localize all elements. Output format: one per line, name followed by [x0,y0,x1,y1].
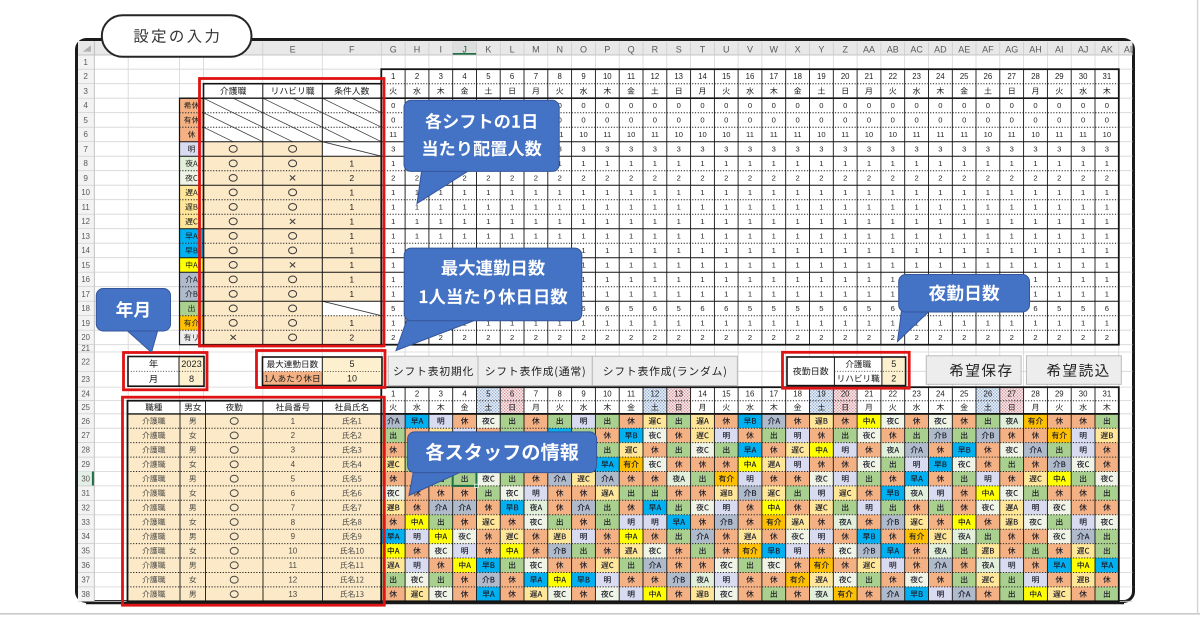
svg-text:34: 34 [81,532,90,541]
svg-text:24: 24 [81,390,90,399]
svg-text:3: 3 [83,87,88,96]
svg-text:19: 19 [81,319,90,328]
svg-text:26: 26 [81,417,90,426]
svg-text:AE: AE [958,44,970,54]
svg-text:AJ: AJ [1078,44,1089,54]
svg-text:11: 11 [289,561,298,570]
svg-text:28: 28 [81,446,90,455]
svg-text:12: 12 [81,217,90,226]
svg-text:V: V [747,44,753,54]
svg-text:29: 29 [81,460,90,469]
svg-text:U: U [723,44,730,54]
svg-text:L: L [510,44,515,54]
svg-text:17: 17 [81,290,90,299]
svg-text:27: 27 [81,431,90,440]
svg-text:2023: 2023 [181,359,201,369]
svg-text:1: 1 [349,245,354,255]
svg-text:10: 10 [288,547,297,556]
svg-text:30: 30 [81,475,90,484]
svg-text:6: 6 [83,130,88,139]
svg-text:M: M [532,44,540,54]
svg-text:5: 5 [291,475,296,484]
svg-text:2: 2 [891,374,896,384]
svg-text:5: 5 [83,116,88,125]
svg-text:AI: AI [1055,44,1064,54]
svg-text:J: J [462,44,467,54]
svg-text:2: 2 [83,72,88,81]
svg-text:2: 2 [291,431,296,440]
svg-text:4: 4 [291,460,296,469]
svg-text:I: I [440,44,443,54]
svg-text:AF: AF [982,44,994,54]
svg-text:R: R [652,44,659,54]
svg-text:31: 31 [81,489,90,498]
svg-text:AG: AG [1005,44,1018,54]
svg-text:8: 8 [83,159,88,168]
svg-text:N: N [556,44,563,54]
svg-text:6: 6 [291,489,296,498]
svg-text:14: 14 [81,246,90,255]
svg-text:P: P [604,44,610,54]
svg-text:1: 1 [349,158,354,168]
svg-text:36: 36 [81,561,90,570]
svg-text:18: 18 [81,304,90,313]
svg-text:K: K [485,44,491,54]
svg-text:7: 7 [83,145,88,154]
svg-text:38: 38 [81,590,90,599]
svg-text:1: 1 [291,417,296,426]
svg-text:10: 10 [347,374,357,384]
svg-text:35: 35 [81,547,90,556]
svg-text:X: X [795,44,801,54]
svg-text:33: 33 [81,518,90,527]
svg-text:G: G [390,44,397,54]
svg-text:21: 21 [81,344,90,353]
svg-text:20: 20 [81,333,90,342]
svg-text:32: 32 [81,503,90,512]
svg-text:Q: Q [628,44,635,54]
svg-text:E: E [290,44,296,54]
svg-text:5: 5 [349,359,354,369]
svg-text:Z: Z [842,44,848,54]
svg-text:1: 1 [349,216,354,226]
svg-text:22: 22 [81,357,90,366]
svg-text:1: 1 [349,187,354,197]
svg-text:H: H [414,44,421,54]
svg-text:F: F [349,44,355,54]
svg-text:16: 16 [81,275,90,284]
svg-text:7: 7 [291,503,296,512]
svg-text:1: 1 [349,231,354,241]
svg-text:9: 9 [291,532,296,541]
svg-text:AH: AH [1029,44,1042,54]
svg-text:12: 12 [288,576,297,585]
svg-text:3: 3 [291,446,296,455]
svg-text:T: T [700,44,706,54]
svg-text:2: 2 [349,332,354,342]
svg-text:10: 10 [81,188,90,197]
svg-text:13: 13 [288,590,297,599]
svg-text:1: 1 [349,274,354,284]
svg-text:13: 13 [81,232,90,241]
svg-text:W: W [770,44,779,54]
svg-text:1: 1 [349,202,354,212]
svg-text:1: 1 [83,58,88,67]
svg-text:1: 1 [349,289,354,299]
svg-text:37: 37 [81,576,90,585]
svg-text:2: 2 [349,173,354,183]
svg-text:1: 1 [349,318,354,328]
svg-text:AD: AD [934,44,947,54]
svg-text:1: 1 [349,260,354,270]
svg-text:O: O [580,44,587,54]
svg-text:AA: AA [863,44,875,54]
svg-text:5: 5 [891,359,896,369]
svg-text:AC: AC [910,44,923,54]
svg-text:11: 11 [82,203,90,212]
svg-text:8: 8 [189,374,194,384]
svg-text:23: 23 [81,375,90,384]
svg-text:4: 4 [83,101,88,110]
svg-text:AB: AB [887,44,899,54]
svg-text:S: S [676,44,682,54]
svg-text:9: 9 [83,174,88,183]
svg-text:15: 15 [81,261,90,270]
svg-text:AK: AK [1101,44,1113,54]
svg-text:Y: Y [818,44,824,54]
svg-text:25: 25 [81,403,90,412]
svg-text:8: 8 [291,518,296,527]
